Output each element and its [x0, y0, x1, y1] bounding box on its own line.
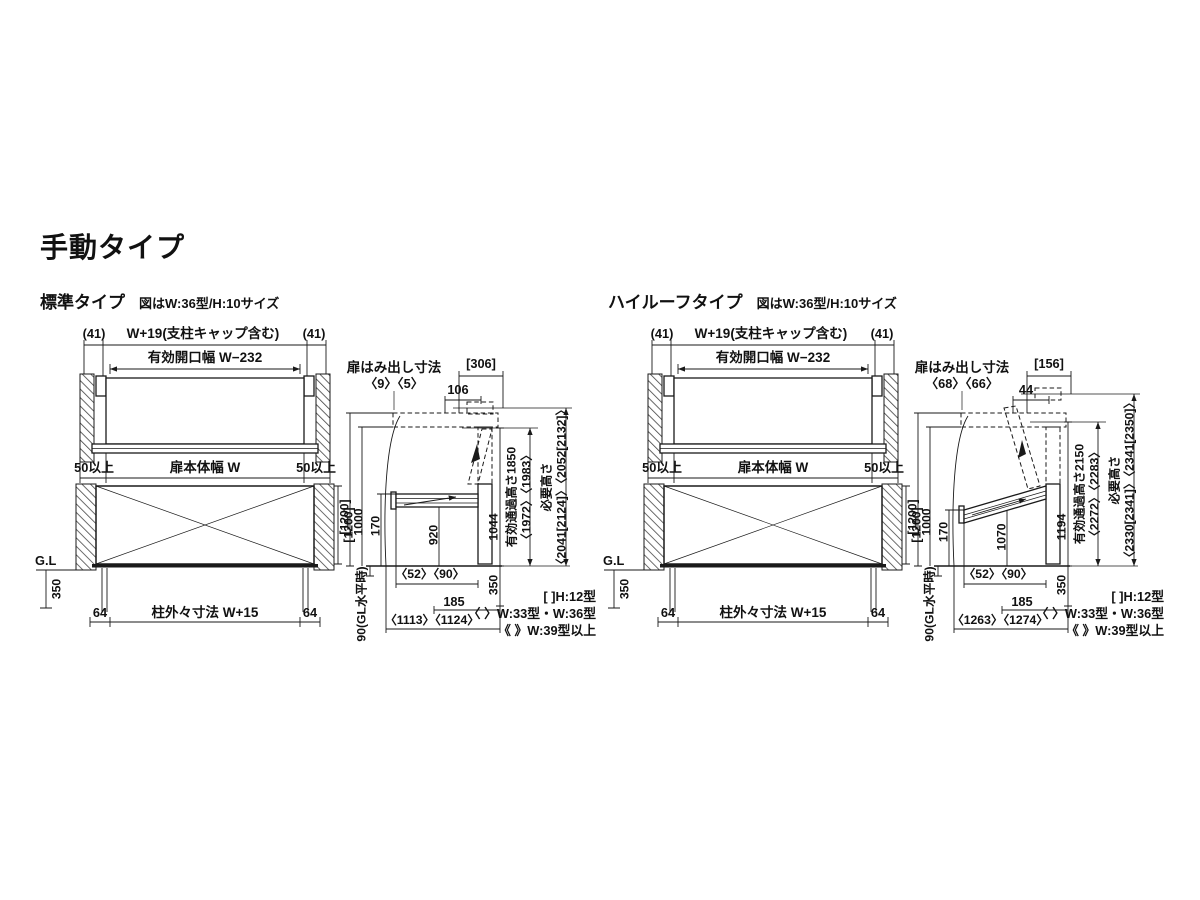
diagram-size-note: 図はW:36型/H:10サイズ	[139, 296, 279, 311]
diagram-heading: 標準タイプ図はW:36型/H:10サイズ	[40, 288, 279, 313]
front-wall-left	[644, 484, 664, 570]
plan-post-right	[304, 376, 314, 396]
front-wall-left	[76, 484, 96, 570]
plan-cap-left-dim: (41)	[83, 326, 106, 341]
side-total-depth-dim: 〈1263〉〈1274〉	[952, 612, 1049, 627]
side-top-width-dim: [306]	[466, 356, 496, 371]
side-door-front-cap	[959, 506, 964, 523]
plan-post-left	[96, 376, 106, 396]
side-passage-height-values: 〈1972〉〈1983〉	[518, 449, 533, 546]
side-door-closed	[396, 494, 478, 507]
side-lift-height-dim: [1200]	[337, 499, 351, 534]
diagram-name: 標準タイプ	[40, 293, 125, 312]
side-front-height-dimension-line	[496, 428, 504, 566]
side-1000-dimension-line	[926, 427, 961, 566]
side-top-width-dimension-line	[1027, 371, 1071, 413]
plan-cap-right-dim: (41)	[303, 326, 326, 341]
side-170-dim: 170	[936, 522, 950, 543]
front-post-right-dim: 64	[303, 605, 318, 620]
plan-door-width-dim: 扉本体幅 W	[170, 459, 241, 475]
front-gl-label: G.L	[35, 553, 57, 568]
legend-w33-36: 〈 〉W:33型・W:36型	[1036, 606, 1164, 621]
plan-total-width-dim: W+19(支柱キャップ含む)	[695, 325, 848, 341]
side-lift-height-dim: [1200]	[905, 499, 919, 534]
front-bottom-rail	[92, 564, 318, 568]
standard-type-drawing: (41) W+19(支柱キャップ含む) (41) 有効開口幅 W−232 50以…	[30, 314, 605, 674]
side-170-dim: 170	[368, 516, 382, 537]
side-under-door-dim: 920	[426, 525, 440, 546]
side-gl-offset-dim: 90(GL水平時)	[921, 566, 936, 641]
side-top-width-dim: [156]	[1034, 356, 1064, 371]
side-front-height-dimension-line	[1064, 422, 1072, 566]
diagram-highroof-type: ハイルーフタイプ図はW:36型/H:10サイズ (41) W+19(支柱キャップ…	[598, 288, 1190, 688]
highroof-type-drawing: (41) W+19(支柱キャップ含む) (41) 有効開口幅 W−232 50以…	[598, 314, 1190, 674]
side-arm-dashed	[468, 429, 492, 484]
side-1000-dim: 1000	[351, 508, 365, 535]
front-door-cross-brace	[96, 486, 314, 564]
side-top-offset-dimension-line	[1013, 396, 1049, 413]
side-185-dim: 185	[1011, 594, 1032, 609]
side-door-front-cap	[391, 492, 396, 509]
side-passage-height-values: 〈2272〉〈2283〉	[1086, 446, 1101, 543]
side-swing-arrowhead	[471, 444, 480, 463]
front-gl-label: G.L	[603, 553, 625, 568]
diagram-size-note: 図はW:36型/H:10サイズ	[757, 296, 897, 311]
front-elevation: G.L 350 64 柱外々寸法 W+15 64 [1200]	[35, 484, 355, 627]
diagram-name: ハイルーフタイプ	[608, 293, 743, 312]
side-door-open-dashed	[961, 413, 1066, 427]
front-elevation: G.L 350 64 柱外々寸法 W+15 64 [1200]	[603, 484, 923, 627]
legend-h12: [ ]H:12型	[1111, 589, 1164, 604]
diagram-heading: ハイルーフタイプ図はW:36型/H:10サイズ	[608, 288, 897, 313]
plan-door-width-dim: 扉本体幅 W	[738, 459, 809, 475]
legend-w39: 《 》W:39型以上	[1066, 623, 1164, 638]
front-wall-right	[314, 484, 334, 570]
legend-h12: [ ]H:12型	[543, 589, 596, 604]
side-footing-depth-dim: 350	[486, 575, 500, 596]
front-bottom-rail	[660, 564, 886, 568]
side-protrusion-label: 扉はみ出し寸法	[915, 359, 1010, 375]
side-passage-height-label: 有効通過高さ1850	[503, 447, 518, 547]
side-1000-dimension-line	[358, 427, 393, 566]
side-185-dim: 185	[443, 594, 464, 609]
side-door-open-dashed	[393, 413, 498, 427]
side-required-height-values: 〈2041[2124]〉〈2052[2132]〉	[553, 403, 568, 570]
front-outer-width-dim: 柱外々寸法 W+15	[152, 604, 259, 620]
front-post-left-dim: 64	[661, 605, 676, 620]
side-front-height-dim: 1194	[1054, 514, 1068, 541]
side-swing-arc	[953, 416, 968, 566]
diagram-standard-type: 標準タイプ図はW:36型/H:10サイズ (41) W+19(支柱キャップ含む)…	[30, 288, 605, 688]
side-top-offset-dimension-line	[445, 396, 481, 413]
side-total-depth-dim: 〈1113〉〈1124〉	[385, 612, 480, 627]
plan-opening-width-dim: 有効開口幅 W−232	[148, 349, 262, 365]
side-protrusion-label: 扉はみ出し寸法	[347, 359, 442, 375]
front-post-left-dim: 64	[93, 605, 108, 620]
side-protrusion-values: 〈9〉〈5〉	[364, 376, 423, 391]
plan-total-width-dim: W+19(支柱キャップ含む)	[127, 325, 280, 341]
front-post-right-dim: 64	[871, 605, 886, 620]
side-swing-arrowhead	[1018, 440, 1026, 458]
page-title: 手動タイプ	[40, 226, 185, 266]
side-swing-arc	[385, 416, 400, 566]
side-section: 扉はみ出し寸法 〈68〉〈66〉 [156] 44	[905, 356, 1164, 642]
side-front-height-dim: 1044	[486, 513, 500, 540]
plan-cap-right-dim: (41)	[871, 326, 894, 341]
side-post-upper-dashed	[1046, 427, 1060, 484]
side-top-offset-dim: 44	[1019, 382, 1034, 397]
plan-post-right	[872, 376, 882, 396]
front-footing-depth-dim: 350	[49, 579, 63, 600]
plan-view: (41) W+19(支柱キャップ含む) (41) 有効開口幅 W−232 50以…	[642, 325, 904, 483]
plan-opening-width-dim: 有効開口幅 W−232	[716, 349, 830, 365]
plan-opening-area	[674, 378, 872, 444]
side-protrusion-values: 〈68〉〈66〉	[925, 376, 998, 391]
legend-w33-36: 〈 〉W:33型・W:36型	[468, 606, 596, 621]
side-52-90-dim: 〈52〉〈90〉	[963, 566, 1033, 581]
side-gl-offset-dim: 90(GL水平時)	[353, 566, 368, 641]
plan-cap-left-dim: (41)	[651, 326, 674, 341]
side-passage-height-label: 有効通過高さ2150	[1071, 444, 1086, 544]
side-1000-dim: 1000	[919, 508, 933, 535]
plan-view: (41) W+19(支柱キャップ含む) (41) 有効開口幅 W−232 50以…	[74, 325, 336, 483]
front-footing-depth-dim: 350	[617, 579, 631, 600]
side-footing-depth-dim: 350	[1054, 575, 1068, 596]
side-required-height-label: 必要高さ	[1106, 456, 1121, 506]
plan-opening-area	[106, 378, 304, 444]
front-outer-width-dim: 柱外々寸法 W+15	[720, 604, 827, 620]
side-section: 扉はみ出し寸法 〈9〉〈5〉 [306] 106	[337, 356, 596, 642]
legend-w39: 《 》W:39型以上	[498, 623, 596, 638]
side-required-height-values: 〈2330[2341]〉〈2341[2350]〉	[1121, 396, 1136, 563]
side-required-height-label: 必要高さ	[538, 463, 553, 513]
side-under-door-dim: 1070	[994, 523, 1008, 550]
plan-post-left	[664, 376, 674, 396]
front-wall-right	[882, 484, 902, 570]
catalog-dimension-sheet: 手動タイプ 標準タイプ図はW:36型/H:10サイズ (41) W+19(支柱キ…	[0, 0, 1200, 900]
side-52-90-dim: 〈52〉〈90〉	[395, 566, 465, 581]
side-top-offset-dim: 106	[447, 382, 468, 397]
front-door-cross-brace	[664, 486, 882, 564]
side-door-closed-tilted	[964, 486, 1046, 523]
